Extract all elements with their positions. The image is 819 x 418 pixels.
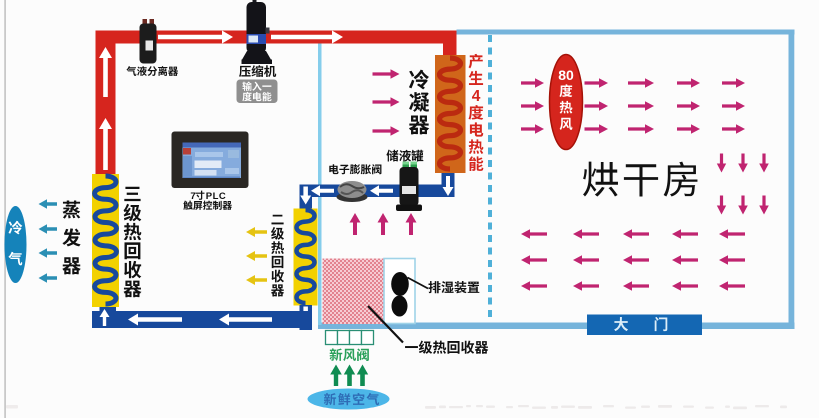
svg-text:4: 4 (472, 88, 481, 105)
svg-text:80: 80 (558, 67, 574, 83)
svg-text:PLC: PLC (206, 191, 227, 202)
svg-text:7: 7 (190, 191, 195, 202)
